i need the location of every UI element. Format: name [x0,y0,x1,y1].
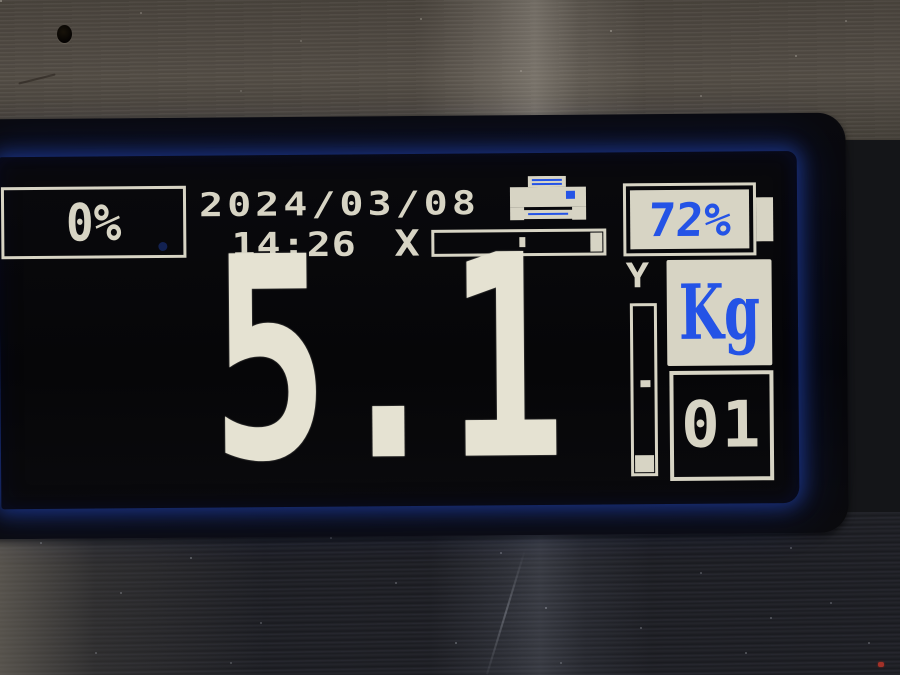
battery-terminal [756,197,773,241]
percent-indicator-value: 0% [66,192,122,253]
battery-icon: 72% [623,182,777,256]
scratch-mark [486,550,526,675]
scale-photo: 0% 2024/03/08 14:26 X [0,0,900,675]
red-speck [878,662,884,667]
screw-hole [57,25,72,43]
channel-badge: 01 [669,370,774,481]
dead-pixel-speck [158,242,167,251]
y-axis-label: Y [625,256,649,296]
channel-value: 01 [681,388,763,463]
gauge-midline [640,380,650,387]
display-bezel: 0% 2024/03/08 14:26 X [0,113,849,540]
battery-fill: 72% [630,189,749,249]
weight-value: 5.1 [210,219,566,502]
battery-level-value: 72% [646,192,732,247]
lcd-screen: 0% 2024/03/08 14:26 X [0,151,799,509]
gauge-fill [635,455,654,472]
metal-speckles [0,0,2,2]
unit-label: Kg [679,274,761,351]
vertical-level-gauge [630,303,658,476]
battery-outline: 72% [623,182,757,256]
scratch-mark [18,73,55,84]
unit-badge: Kg [666,259,772,366]
progress-right-fill [590,233,602,252]
